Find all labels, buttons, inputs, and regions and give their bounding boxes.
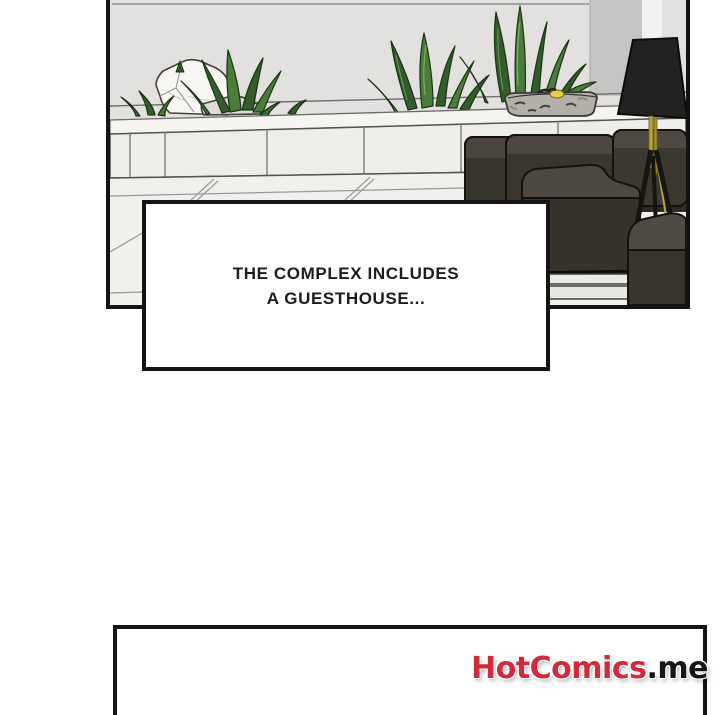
caption-line-2: A GUESTHOUSE... — [267, 286, 426, 311]
watermark-domain: .me — [646, 651, 708, 686]
caption-line-1: THE COMPLEX INCLUDES — [233, 261, 459, 286]
stone-bowl — [505, 89, 597, 116]
site-watermark: HotComics.me — [471, 651, 708, 686]
watermark-brand: HotComics — [471, 651, 646, 686]
caption-box: THE COMPLEX INCLUDES A GUESTHOUSE... — [142, 200, 550, 371]
